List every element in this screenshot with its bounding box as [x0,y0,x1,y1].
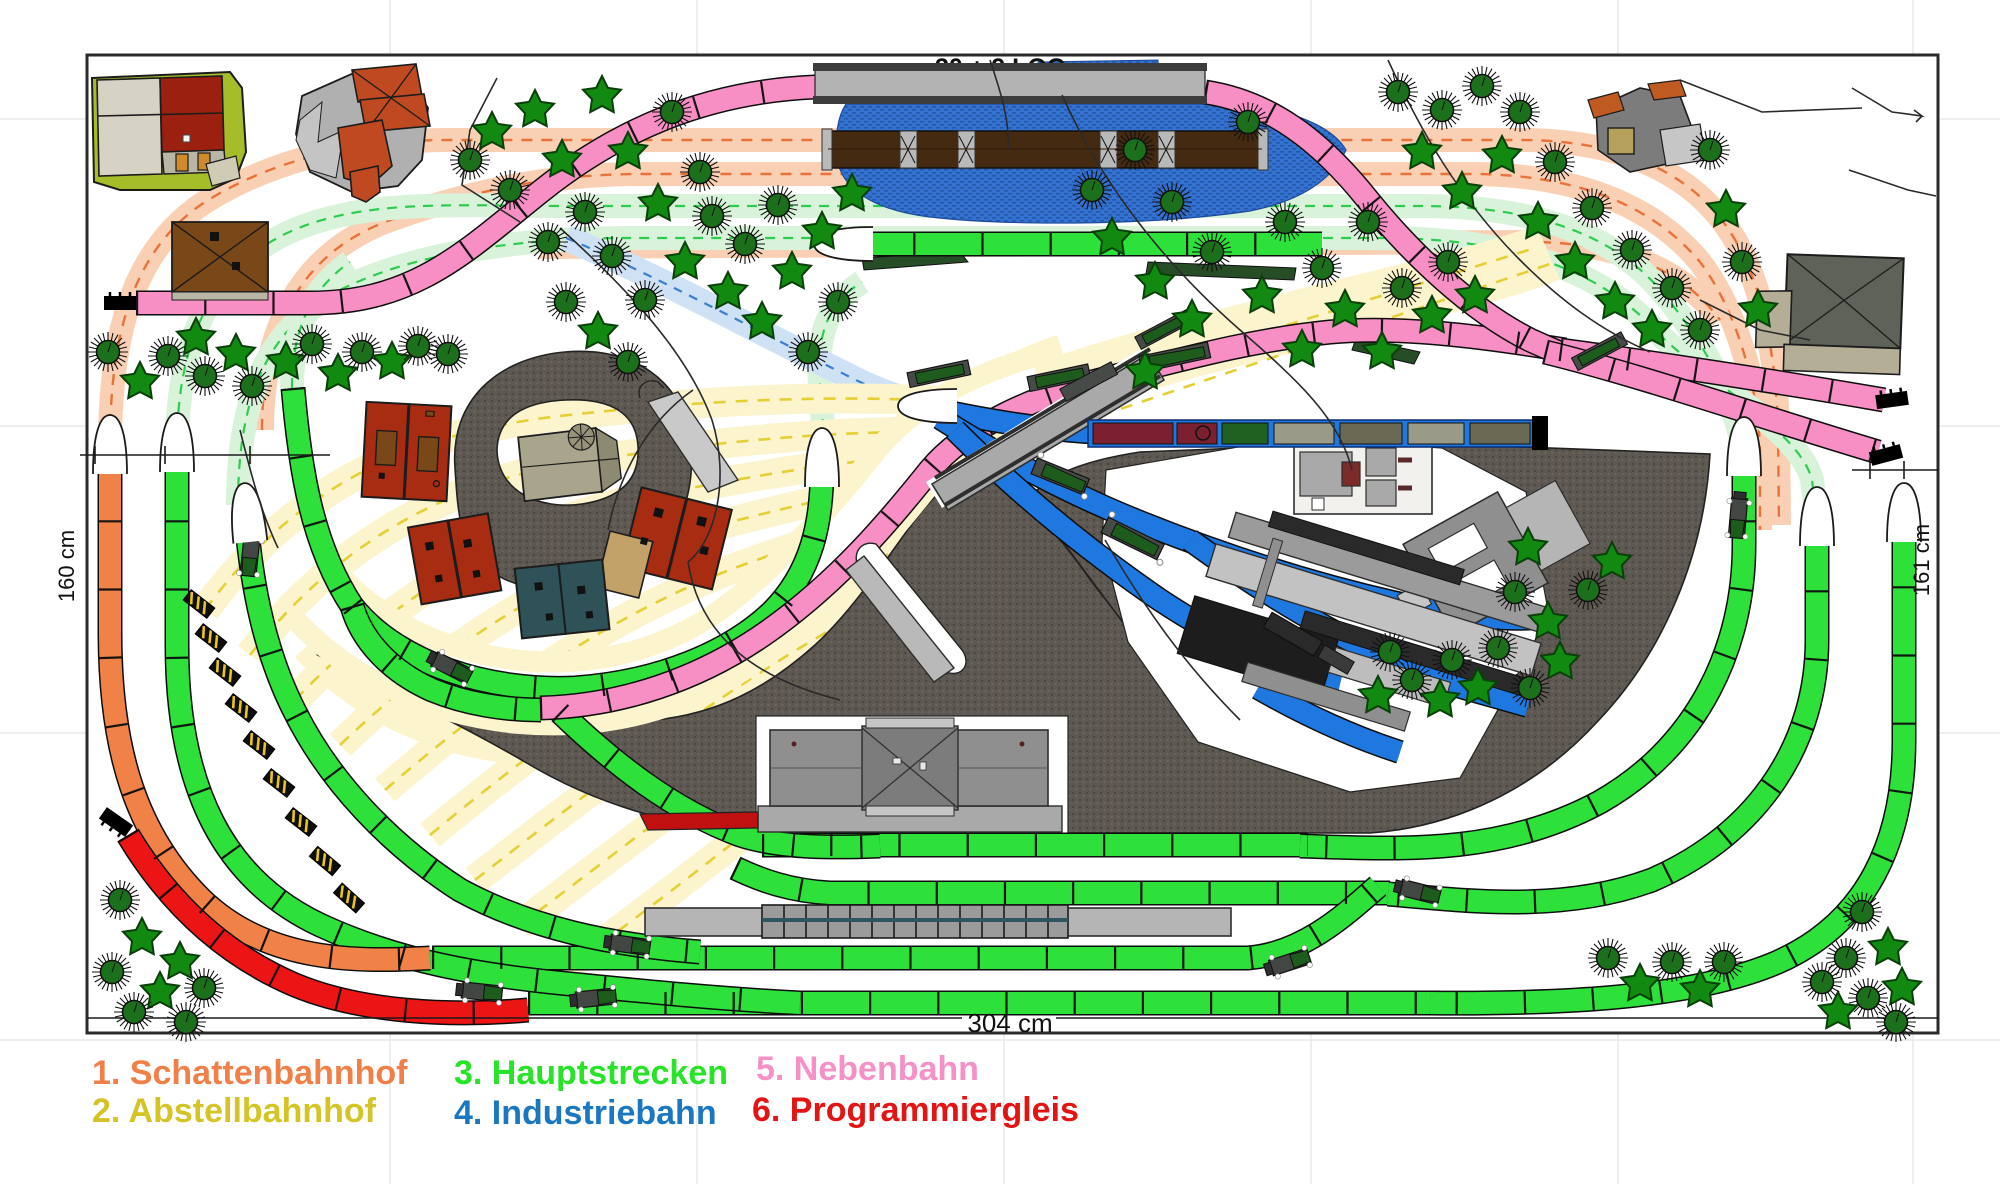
svg-text:6. Programmiergleis: 6. Programmiergleis [752,1091,1079,1129]
svg-text:5. Nebenbahn: 5. Nebenbahn [756,1050,979,1088]
svg-text:161 cm: 161 cm [1909,524,1934,596]
svg-text:3. Hauptstrecken: 3. Hauptstrecken [454,1054,728,1092]
svg-text:1. Schattenbahnhof: 1. Schattenbahnhof [92,1054,408,1092]
svg-text:2. Abstellbahnhof: 2. Abstellbahnhof [92,1092,377,1130]
svg-text:304 cm: 304 cm [967,1008,1052,1038]
svg-text:160 cm: 160 cm [54,530,79,602]
svg-text:4. Industriebahn: 4. Industriebahn [454,1094,717,1132]
